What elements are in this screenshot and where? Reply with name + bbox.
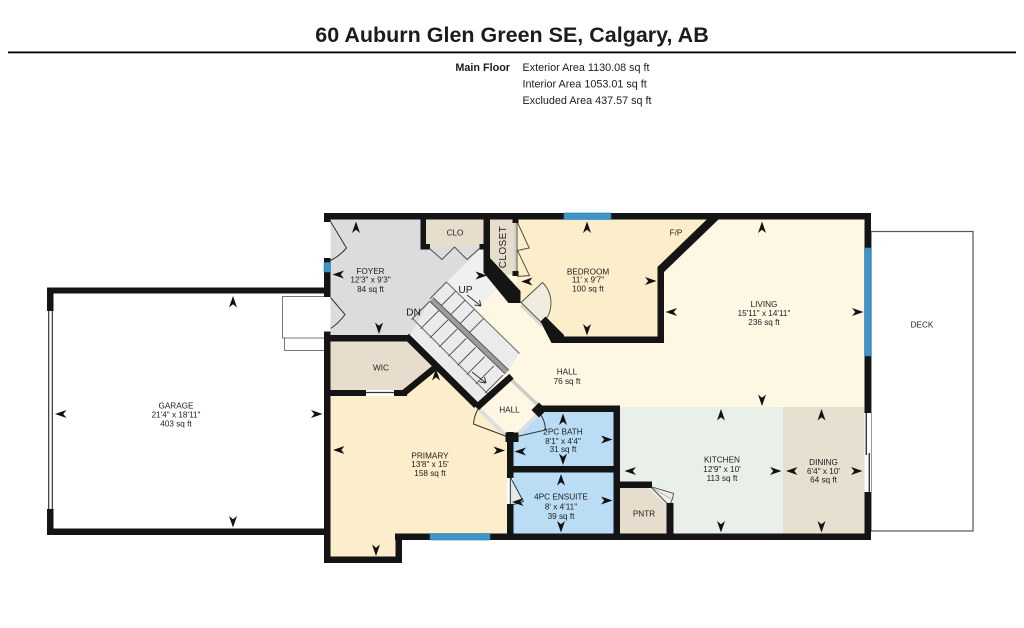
svg-text:113 sq ft: 113 sq ft [707,474,739,483]
svg-text:CLO: CLO [447,229,464,238]
svg-text:Main Floor: Main Floor [455,62,510,74]
svg-text:DECK: DECK [911,321,934,330]
svg-text:LIVING: LIVING [751,300,778,309]
svg-text:39 sq ft: 39 sq ft [548,512,576,521]
svg-text:12'3" x 9'3": 12'3" x 9'3" [350,276,390,285]
svg-text:WIC: WIC [373,364,389,373]
svg-text:236 sq ft: 236 sq ft [748,318,780,327]
svg-text:PNTR: PNTR [633,510,655,519]
svg-text:Excluded Area 437.57 sq ft: Excluded Area 437.57 sq ft [523,95,652,107]
svg-text:31 sq ft: 31 sq ft [550,445,578,454]
svg-text:PRIMARY: PRIMARY [411,451,449,460]
svg-text:DINING: DINING [809,458,838,467]
svg-text:F/P: F/P [670,229,683,238]
svg-text:12'9" x 10': 12'9" x 10' [703,465,741,474]
svg-text:76 sq ft: 76 sq ft [554,377,582,386]
svg-text:84 sq ft: 84 sq ft [357,285,385,294]
svg-text:64 sq ft: 64 sq ft [810,476,838,485]
svg-text:158 sq ft: 158 sq ft [414,469,446,478]
svg-text:4PC ENSUITE: 4PC ENSUITE [534,493,588,502]
svg-text:100 sq ft: 100 sq ft [572,284,604,293]
svg-text:HALL: HALL [499,406,520,415]
svg-text:11' x 9'7": 11' x 9'7" [572,276,604,285]
svg-text:13'8" x 15': 13'8" x 15' [411,460,449,469]
svg-text:60 Auburn Glen Green SE, Calga: 60 Auburn Glen Green SE, Calgary, AB [315,23,708,47]
svg-text:8' x 4'11": 8' x 4'11" [545,503,577,512]
svg-text:2PC BATH: 2PC BATH [543,427,583,436]
svg-text:CLOSET: CLOSET [498,226,509,268]
svg-text:15'11" x 14'11": 15'11" x 14'11" [738,309,791,318]
svg-text:DN: DN [406,308,421,319]
svg-text:FOYER: FOYER [356,267,384,276]
svg-text:GARAGE: GARAGE [158,401,194,410]
svg-text:KITCHEN: KITCHEN [704,455,740,464]
svg-text:403 sq ft: 403 sq ft [160,420,192,429]
svg-text:HALL: HALL [557,368,578,377]
svg-text:Interior Area 1053.01 sq ft: Interior Area 1053.01 sq ft [523,79,647,91]
svg-text:UP: UP [458,285,472,296]
svg-text:Exterior Area 1130.08 sq ft: Exterior Area 1130.08 sq ft [523,62,650,74]
svg-text:21'4" x 18'11": 21'4" x 18'11" [152,411,201,420]
